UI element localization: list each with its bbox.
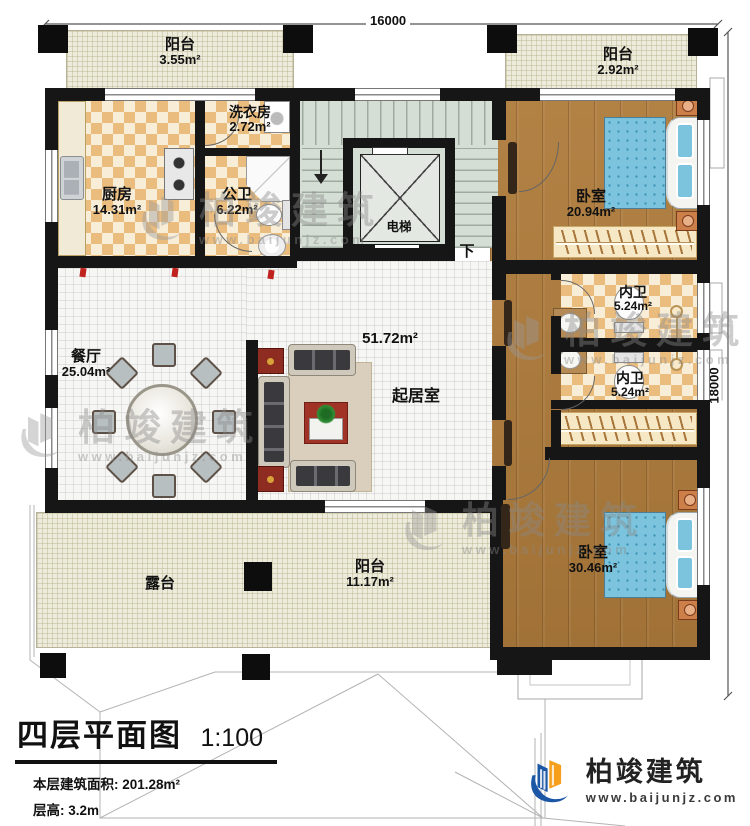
wall-segment — [697, 88, 710, 120]
column — [688, 28, 718, 56]
shower-head-icon — [670, 305, 683, 318]
shower-head-icon — [670, 358, 683, 371]
wardrobe-bedroom-bottom — [557, 412, 697, 445]
brand-website: www.baijunjz.com — [586, 790, 738, 805]
dining-chair — [212, 410, 236, 434]
end-table — [256, 348, 284, 374]
stair-flight-left — [302, 148, 343, 248]
room-area: 14.31m² — [93, 203, 141, 218]
wall-segment — [255, 88, 355, 101]
stairs-down-label: 下 — [459, 243, 474, 260]
room-area: 25.04m² — [62, 365, 110, 380]
room-label-elevator: 电梯 — [386, 220, 411, 234]
pillow — [676, 556, 694, 590]
title-block: 四层平面图 1:100 本层建筑面积: 201.28m² 层高: 3.2m — [15, 710, 277, 819]
room-area: 2.92m² — [597, 63, 638, 78]
room-label-balcony-top-left: 阳台 3.55m² — [159, 36, 200, 68]
plant-icon — [316, 404, 336, 424]
dining-table — [126, 384, 198, 456]
wall-segment — [551, 263, 561, 280]
wall-segment — [492, 196, 506, 300]
living-area-value: 51.72m² — [362, 330, 418, 347]
room-area: 30.46m² — [569, 561, 617, 576]
wall-segment — [497, 655, 552, 675]
wall-segment — [45, 88, 58, 150]
kitchen-stove — [164, 148, 194, 200]
floor-plan-page: 16000 18000 — [0, 0, 750, 826]
dimension-top: 16000 — [366, 13, 410, 28]
room-label-bedroom-bottom: 卧室 30.46m² — [569, 544, 617, 576]
room-name: 起居室 — [392, 388, 440, 406]
sofa-cushions — [294, 350, 350, 370]
elevator-door — [372, 147, 408, 155]
wall-segment — [498, 260, 710, 274]
wall-segment — [697, 585, 710, 660]
room-name: 电梯 — [386, 220, 411, 234]
dining-chair — [92, 410, 116, 434]
wall-segment — [551, 316, 561, 374]
elevator-shaft-wall — [343, 138, 353, 254]
elevator-shaft-wall — [445, 138, 455, 254]
room-label-kitchen: 厨房 14.31m² — [93, 186, 141, 218]
wall-segment — [45, 375, 58, 408]
room-label-terrace: 露台 — [145, 575, 175, 592]
room-area: 6.22m² — [216, 203, 257, 218]
window-symbol — [697, 283, 710, 333]
column — [38, 25, 68, 53]
door-leaf — [501, 504, 510, 549]
floor-height-line: 层高: 3.2m — [33, 799, 277, 819]
room-name: 卧室 — [567, 188, 615, 205]
red-frame-mark — [79, 268, 86, 278]
sofa-cushions — [296, 466, 350, 486]
window-symbol — [45, 330, 58, 375]
dining-chair — [152, 474, 176, 498]
room-area: 5.24m² — [611, 386, 649, 400]
plan-title: 四层平面图 — [17, 718, 182, 753]
column — [244, 562, 272, 591]
room-label-bedroom-top: 卧室 20.94m² — [567, 188, 615, 220]
room-name: 阳台 — [597, 46, 638, 63]
room-name: 阳台 — [346, 558, 394, 575]
brand-name: 柏竣建筑 — [586, 759, 738, 786]
door-leaf — [504, 420, 512, 466]
room-label-bath-lower: 内卫 5.24m² — [611, 370, 649, 400]
closet-rail — [556, 242, 694, 245]
room-label-bath-upper: 内卫 5.24m² — [614, 284, 652, 314]
wall-segment — [545, 447, 710, 460]
window-symbol — [45, 150, 58, 222]
wall-segment — [246, 340, 258, 500]
kitchen-sink — [60, 156, 84, 200]
wall-segment — [697, 205, 710, 283]
room-name: 阳台 — [159, 36, 200, 53]
pillow — [676, 123, 694, 159]
round-sink — [258, 234, 286, 258]
room-label-balcony-bottom: 阳台 11.17m² — [346, 558, 394, 590]
closet-rail — [560, 429, 694, 432]
window-symbol — [355, 88, 440, 101]
column — [40, 653, 66, 678]
room-area: 20.94m² — [567, 205, 615, 220]
room-name: 公卫 — [216, 186, 257, 203]
window-symbol — [697, 488, 710, 585]
sliding-door — [325, 500, 425, 513]
room-label-balcony-top-right: 阳台 2.92m² — [597, 46, 638, 78]
brand-logo-icon — [524, 752, 578, 812]
wall-segment — [290, 88, 300, 256]
wall-segment — [697, 333, 710, 350]
end-table — [256, 466, 284, 492]
room-name: 露台 — [145, 575, 175, 592]
stair-arrow-icon — [314, 174, 328, 184]
room-name: 内卫 — [614, 284, 652, 300]
column — [242, 654, 270, 680]
wall-segment — [551, 338, 703, 352]
wall-segment — [492, 88, 506, 140]
wall-segment — [45, 500, 325, 513]
stair-walkline — [320, 150, 322, 176]
room-area: 11.17m² — [346, 575, 394, 590]
plan-scale: 1:100 — [200, 724, 263, 752]
room-name: 内卫 — [611, 370, 649, 386]
bath-lower-toilet-tank — [614, 352, 644, 363]
wall-segment — [551, 410, 561, 447]
wall-segment — [45, 222, 58, 330]
room-label-living: 起居室 — [392, 388, 440, 406]
dining-chair — [152, 343, 176, 367]
wall-segment — [45, 468, 58, 512]
room-label-dining: 餐厅 25.04m² — [62, 348, 110, 380]
room-area: 5.24m² — [614, 300, 652, 314]
floor-area-line: 本层建筑面积: 201.28m² — [33, 773, 277, 793]
room-label-laundry: 洗衣房 2.72m² — [229, 104, 271, 135]
bath-upper-toilet-tank — [614, 322, 644, 333]
room-area: 2.72m² — [229, 120, 271, 135]
room-area: 51.72m² — [362, 330, 418, 347]
wall-segment — [297, 248, 455, 261]
column — [283, 25, 313, 53]
wall-segment — [200, 148, 290, 156]
window-symbol — [697, 350, 710, 400]
wall-segment — [492, 346, 506, 420]
sliding-door — [540, 88, 675, 101]
red-frame-mark — [171, 268, 178, 278]
room-label-public-bath: 公卫 6.22m² — [216, 186, 257, 218]
wall-segment — [195, 101, 205, 256]
brand-footer: 柏竣建筑 www.baijunjz.com — [524, 752, 738, 812]
wall-segment — [697, 400, 710, 488]
column — [487, 25, 517, 53]
room-name: 餐厅 — [62, 348, 110, 365]
room-area: 3.55m² — [159, 53, 200, 68]
red-frame-mark — [267, 270, 274, 280]
window-symbol — [45, 408, 58, 468]
wall-segment — [492, 466, 506, 500]
window-symbol — [697, 120, 710, 205]
down-label: 下 — [459, 243, 474, 260]
door-leaf — [508, 142, 517, 194]
room-name: 卧室 — [569, 544, 617, 561]
room-name: 厨房 — [93, 186, 141, 203]
room-name: 洗衣房 — [229, 104, 271, 120]
sliding-door — [105, 88, 255, 101]
pillow — [676, 518, 694, 552]
door-leaf — [504, 300, 512, 346]
wall-segment — [440, 88, 540, 101]
plan-title-row: 四层平面图 1:100 — [15, 710, 277, 764]
pillow — [676, 163, 694, 199]
toilet-bowl — [256, 204, 282, 226]
wall-segment — [45, 256, 297, 268]
sofa-cushions — [264, 382, 284, 462]
